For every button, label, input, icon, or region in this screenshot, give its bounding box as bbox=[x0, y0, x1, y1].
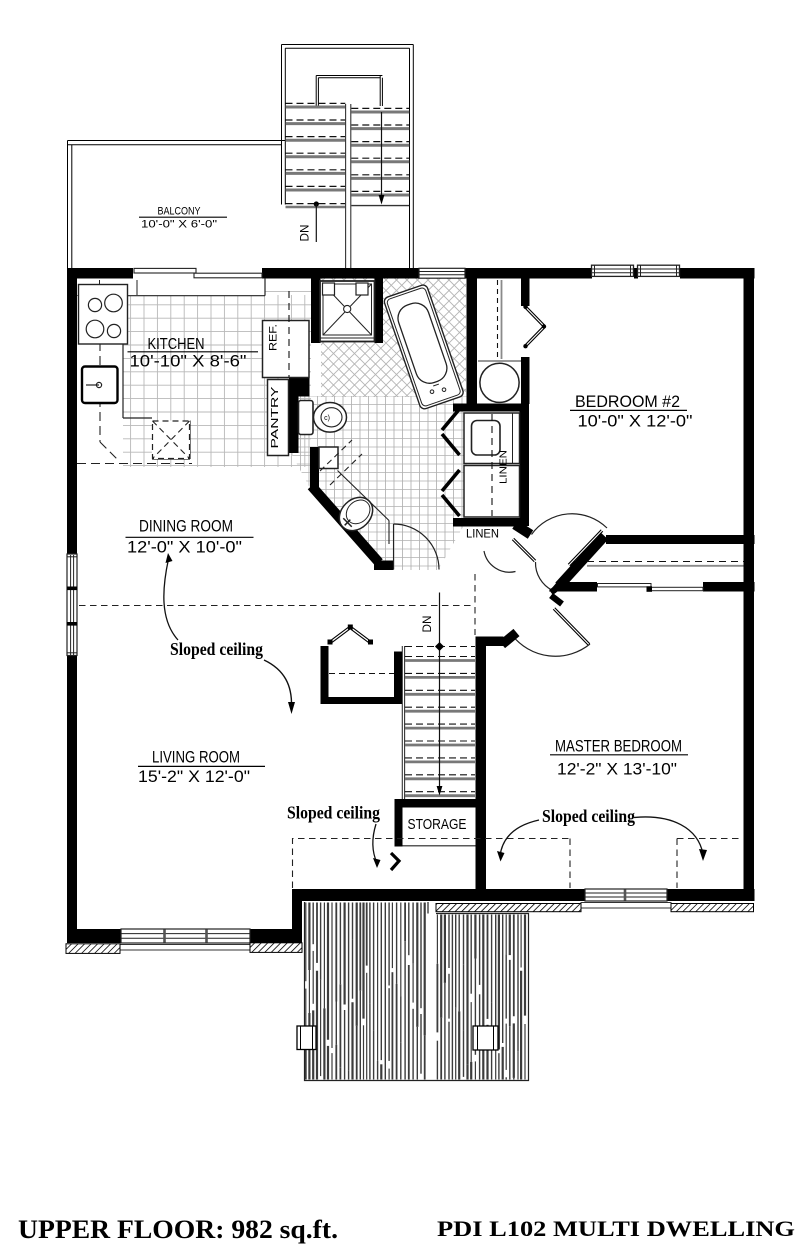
svg-text:DN: DN bbox=[422, 616, 434, 633]
svg-text:Sloped ceiling: Sloped ceiling bbox=[542, 806, 635, 826]
svg-text:REF.: REF. bbox=[268, 324, 280, 351]
svg-text:Sloped ceiling: Sloped ceiling bbox=[170, 639, 263, 659]
svg-text:Sloped ceiling: Sloped ceiling bbox=[287, 803, 380, 823]
svg-text:12'-2" X 13'-10": 12'-2" X 13'-10" bbox=[557, 761, 677, 779]
svg-text:12'-0" X 10'-0": 12'-0" X 10'-0" bbox=[127, 539, 242, 557]
svg-text:DINING ROOM: DINING ROOM bbox=[139, 517, 233, 536]
svg-text:BALCONY: BALCONY bbox=[158, 206, 202, 218]
svg-text:c): c) bbox=[324, 415, 330, 422]
svg-text:LINEN: LINEN bbox=[498, 450, 510, 484]
svg-text:UPPER FLOOR: 982 sq.ft.: UPPER FLOOR: 982 sq.ft. bbox=[18, 1215, 338, 1244]
svg-text:LIVING ROOM: LIVING ROOM bbox=[152, 749, 240, 767]
svg-text:BEDROOM #2: BEDROOM #2 bbox=[575, 393, 680, 411]
svg-text:PANTRY: PANTRY bbox=[269, 387, 281, 449]
svg-text:STORAGE: STORAGE bbox=[408, 817, 467, 833]
svg-text:DN: DN bbox=[300, 225, 312, 242]
svg-text:15'-2" X 12'-0": 15'-2" X 12'-0" bbox=[138, 768, 250, 786]
svg-text:10'-10" X 8'-6": 10'-10" X 8'-6" bbox=[130, 353, 247, 371]
svg-text:MASTER BEDROOM: MASTER BEDROOM bbox=[555, 738, 682, 756]
svg-text:10'-0" X 6'-0": 10'-0" X 6'-0" bbox=[141, 219, 217, 231]
svg-text:PDI L102 MULTI DWELLING: PDI L102 MULTI DWELLING bbox=[437, 1216, 795, 1241]
svg-text:KITCHEN: KITCHEN bbox=[148, 336, 205, 353]
svg-text:LINEN: LINEN bbox=[466, 529, 499, 541]
svg-text:10'-0" X 12'-0": 10'-0" X 12'-0" bbox=[578, 413, 693, 431]
